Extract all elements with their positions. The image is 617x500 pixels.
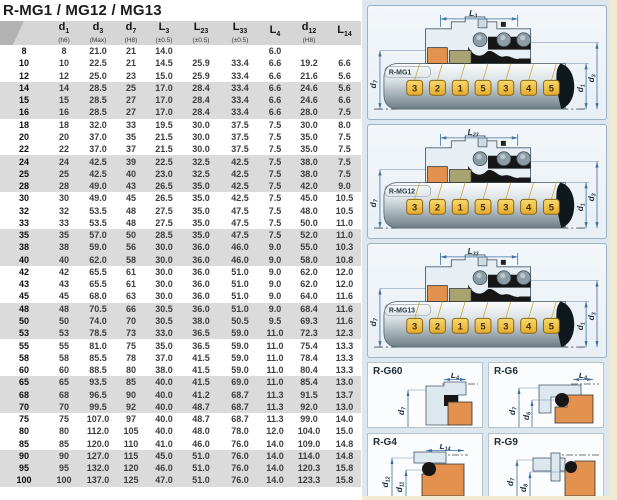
value-cell: 10.3 [328,241,361,253]
table-row: 9595132.012046.051.076.014.0120.315.8 [0,462,361,474]
value-cell: 28.0 [290,106,328,118]
part-tag-number: 5 [480,83,485,94]
part-tag-number: 3 [503,202,508,213]
table-row: 161628.52717.028.433.46.628.07.5 [0,106,361,118]
value-cell [290,45,328,57]
value-cell: 19.2 [290,57,328,69]
part-tag-number: 4 [526,202,532,213]
value-cell: 7.5 [260,143,290,155]
size-cell: 12 [0,70,48,82]
value-cell: 97 [116,413,146,425]
value-cell: 56 [116,241,146,253]
size-cell: 100 [0,474,48,486]
value-cell: 12 [48,70,80,82]
value-cell: 26.5 [146,192,182,204]
value-cell: 109.0 [290,438,328,450]
value-cell: 25.9 [182,57,220,69]
table-row: 585885.57837.041.559.011.078.413.3 [0,352,361,364]
value-cell: 24.6 [290,94,328,106]
value-cell: 41.5 [182,364,220,376]
detail-diagram: L4 d7 d6 [489,373,603,427]
spec-table-body: 8821.02114.06.0101022.52114.525.933.46.6… [0,45,361,487]
size-cell: 70 [0,401,48,413]
value-cell: 120 [116,462,146,474]
value-cell: 9.5 [260,315,290,327]
length-dimension: L4 [444,373,466,382]
value-cell: 39 [116,155,146,167]
value-cell: 28.5 [80,94,116,106]
table-row: 222237.03721.530.037.57.535.07.5 [0,143,361,155]
value-cell: 30.5 [146,303,182,315]
value-cell: 48.0 [182,425,220,437]
value-cell: 10.8 [328,254,361,266]
value-cell: 37.0 [146,352,182,364]
value-cell: 114.0 [290,450,328,462]
value-cell: 62.0 [290,278,328,290]
value-cell: 70 [48,401,80,413]
value-cell: 35.0 [182,204,220,216]
value-cell: 58 [116,254,146,266]
value-cell: 12.0 [328,266,361,278]
table-row: 707099.59240.048.768.711.392.013.0 [0,401,361,413]
spec-table-section: R-MG1 / MG12 / MG13 d1(h6)d3(Max)d7(H8)L… [0,0,362,487]
value-cell: 65.5 [80,266,116,278]
value-cell: 68.7 [220,401,260,413]
value-cell: 45 [48,290,80,302]
value-cell: 24.6 [290,82,328,94]
value-cell: 33.4 [220,82,260,94]
detail-diagram-box: R-G6 L4 d7 d6 [488,362,604,428]
value-cell: 21.5 [146,143,182,155]
value-cell: 51.0 [220,278,260,290]
value-cell: 14.5 [146,57,182,69]
size-cell: 32 [0,204,48,216]
value-cell: 11.0 [260,364,290,376]
dia-dim-1-label: d7 [507,406,519,415]
table-row: 181832.03319.530.037.57.530.08.0 [0,119,361,131]
value-cell: 53.5 [80,204,116,216]
value-cell: 27 [116,94,146,106]
value-cell: 7.5 [260,192,290,204]
value-cell: 46.0 [220,254,260,266]
set-screw [478,19,487,28]
value-cell: 45 [116,192,146,204]
value-cell: 27 [116,106,146,118]
size-cell: 80 [0,425,48,437]
main-diagram-list: L3 d7 d1 d3 [367,5,606,358]
value-cell: 99.0 [290,413,328,425]
value-cell: 7.5 [260,131,290,143]
size-cell: 16 [0,106,48,118]
table-row: 484870.56630.536.051.09.068.411.6 [0,303,361,315]
value-cell: 45.0 [146,450,182,462]
value-cell: 11.3 [260,401,290,413]
value-cell: 25.9 [182,70,220,82]
value-cell: 11.6 [328,290,361,302]
value-cell: 51.0 [220,290,260,302]
length-dim-label: L3 [469,8,477,20]
table-row: 323253.54827.535.047.57.548.010.5 [0,204,361,216]
header-cell: d3(Max) [80,21,116,45]
value-cell: 68.7 [220,388,260,400]
value-cell: 51.0 [182,462,220,474]
value-cell: 42.5 [220,155,260,167]
value-cell: 42.5 [80,168,116,180]
value-cell: 30.0 [146,254,182,266]
detail-diagram-grid: R-G60 L4 d7 R-G6 [367,362,606,499]
seal-diagram: L3 d7 d1 d3 [368,7,604,117]
value-cell: 36.5 [182,339,220,351]
header-corner-cell [0,21,48,45]
value-cell: 48 [48,303,80,315]
value-cell: 51.0 [220,266,260,278]
value-cell: 72.3 [290,327,328,339]
table-row: 505074.07030.538.050.59.569.311.6 [0,315,361,327]
value-cell: 35 [116,131,146,143]
value-cell: 59.0 [80,241,116,253]
value-cell: 104.0 [290,425,328,437]
value-cell: 7.5 [328,143,361,155]
value-cell: 40 [116,168,146,180]
dia-dimension-1: d7 [396,390,426,427]
value-cell: 40.0 [146,413,182,425]
value-cell: 10.5 [328,204,361,216]
value-cell: 48.7 [182,401,220,413]
length-dim-label: L4 [579,373,587,382]
value-cell: 45.0 [290,192,328,204]
value-cell: 37.0 [80,143,116,155]
part-tag-number: 5 [480,202,485,213]
value-cell: 13.7 [328,388,361,400]
table-row: 282849.04326.535.042.57.542.09.0 [0,180,361,192]
value-cell: 6.6 [328,57,361,69]
part-tag-number: 5 [549,83,554,94]
value-cell: 46.0 [182,438,220,450]
value-cell: 25.0 [80,70,116,82]
shaft-dim-2-label: d3 [586,74,598,82]
value-cell: 49.0 [80,180,116,192]
value-cell: 50.5 [220,315,260,327]
value-cell [182,45,220,57]
value-cell: 59.0 [220,327,260,339]
value-cell [328,45,361,57]
springs [473,152,530,166]
value-cell: 51.0 [220,303,260,315]
value-cell: 80 [48,425,80,437]
value-cell: 78.5 [80,327,116,339]
value-cell: 37.5 [220,119,260,131]
value-cell: 13.0 [328,376,361,388]
part-tag-number: 3 [503,83,508,94]
value-cell: 59.0 [220,364,260,376]
size-cell: 68 [0,388,48,400]
value-cell: 8 [48,45,80,57]
dia-dim-2-label: d11 [394,482,406,493]
value-cell: 27.5 [146,217,182,229]
value-cell: 7.5 [328,155,361,167]
bore-dim-label: d7 [368,198,380,207]
value-cell: 42 [48,266,80,278]
value-cell: 47.5 [220,204,260,216]
seal-diagram: L33 d7 d1 d3 [368,245,604,355]
primary-face [449,289,471,302]
header-cell: L33(±0.5) [220,21,260,45]
value-cell: 53.5 [80,217,116,229]
value-cell: 37.0 [80,131,116,143]
length-dim-label: L14 [439,444,450,453]
o-ring [422,462,436,476]
value-cell: 15.0 [328,425,361,437]
seal-diagram: L23 d7 d1 d3 [368,126,604,236]
value-cell: 43 [116,180,146,192]
value-cell: 19.5 [146,119,182,131]
size-cell: 10 [0,57,48,69]
value-cell: 41.2 [182,388,220,400]
value-cell: 85 [48,438,80,450]
value-cell: 12.3 [328,327,361,339]
value-cell: 42.5 [220,192,260,204]
set-screw [478,138,487,147]
value-cell: 137.0 [80,474,116,486]
seat-face [428,167,448,183]
size-cell: 18 [0,119,48,131]
drive-pin [501,260,506,265]
table-row: 454568.06330.036.051.09.064.011.6 [0,290,361,302]
value-cell: 40.0 [146,388,182,400]
value-cell: 37.5 [220,131,260,143]
part-tag-number: 5 [480,321,485,332]
value-cell: 65 [48,376,80,388]
value-cell: 78 [116,352,146,364]
value-cell: 12.0 [260,425,290,437]
table-row: 8080112.010540.048.078.012.0104.015.0 [0,425,361,437]
value-cell: 69.0 [220,376,260,388]
value-cell: 36.0 [182,278,220,290]
value-cell: 43 [48,278,80,290]
value-cell: 38.0 [146,364,182,376]
value-cell: 88.5 [80,364,116,376]
value-cell: 33.4 [220,70,260,82]
value-cell: 27.5 [146,204,182,216]
value-cell: 40.0 [146,401,182,413]
size-cell: 50 [0,315,48,327]
value-cell: 11.0 [260,339,290,351]
value-cell: 33 [116,119,146,131]
size-cell: 8 [0,45,48,57]
part-tag-number: 4 [526,83,532,94]
spec-table: d1(h6)d3(Max)d7(H8)L3(±0.5)L23(±0.5)L33(… [0,21,361,487]
value-cell: 32 [48,204,80,216]
value-cell: 80.4 [290,364,328,376]
value-cell: 53 [48,327,80,339]
value-cell: 38.0 [290,155,328,167]
value-cell: 14.0 [260,474,290,486]
value-cell: 11.6 [328,315,361,327]
o-ring [565,461,577,473]
value-cell: 21 [116,45,146,57]
value-cell: 36.0 [182,241,220,253]
value-cell: 32.5 [182,168,220,180]
size-cell: 28 [0,180,48,192]
value-cell: 40.0 [146,425,182,437]
value-cell: 68.0 [80,290,116,302]
length-dim-label: L23 [468,127,479,139]
table-row: 434365.56130.036.051.09.062.012.0 [0,278,361,290]
spec-table-head: d1(h6)d3(Max)d7(H8)L3(±0.5)L23(±0.5)L33(… [0,21,361,45]
part-tag-number: 3 [412,83,417,94]
diagram-name: R-MG13 [389,307,415,314]
seal-diagram-box: L33 d7 d1 d3 [367,243,607,358]
size-cell: 30 [0,192,48,204]
value-cell: 5.6 [328,70,361,82]
seat [414,452,446,463]
size-cell: 53 [0,327,48,339]
value-cell: 132.0 [80,462,116,474]
value-cell: 99.5 [80,401,116,413]
size-cell: 43 [0,278,48,290]
value-cell: 35.0 [182,180,220,192]
value-cell: 7.5 [260,204,290,216]
header-cell: d1(h6) [48,21,80,45]
primary-face [449,51,471,64]
value-cell: 96.5 [80,388,116,400]
value-cell: 21 [116,57,146,69]
value-cell: 36.0 [182,303,220,315]
value-cell: 62.0 [290,266,328,278]
value-cell: 7.5 [260,229,290,241]
value-cell: 14.0 [146,45,182,57]
value-cell: 28.4 [182,82,220,94]
value-cell: 35.0 [182,217,220,229]
seat-face [428,286,448,302]
value-cell: 51.0 [182,474,220,486]
size-cell: 95 [0,462,48,474]
value-cell: 61 [116,266,146,278]
shaft-dim-1-label: d1 [575,84,587,92]
value-cell: 12.0 [328,278,361,290]
primary-face [449,170,471,183]
value-cell: 75 [48,413,80,425]
size-cell: 33 [0,217,48,229]
value-cell: 90 [48,450,80,462]
value-cell: 92 [116,401,146,413]
length-dimension: L14 [426,444,464,453]
value-cell: 6.6 [260,57,290,69]
seal-diagram-box: L3 d7 d1 d3 [367,5,607,120]
length-dim-label: L33 [468,246,479,258]
table-row: 555581.07535.036.559.011.075.413.3 [0,339,361,351]
value-cell: 6.6 [260,106,290,118]
springs [473,271,530,285]
value-cell: 105 [116,425,146,437]
value-cell: 76.0 [220,474,260,486]
value-cell: 37 [116,143,146,155]
value-cell: 11.0 [260,327,290,339]
table-row: 8821.02114.06.0 [0,45,361,57]
value-cell: 35.0 [182,229,220,241]
value-cell: 36.0 [182,266,220,278]
value-cell: 47.5 [220,217,260,229]
value-cell: 107.0 [80,413,116,425]
value-cell [220,45,260,57]
value-cell: 123.3 [290,474,328,486]
value-cell: 9.0 [260,266,290,278]
catalog-page: R-MG1 / MG12 / MG13 d1(h6)d3(Max)d7(H8)L… [0,0,617,500]
table-row: 353557.05028.535.047.57.552.011.0 [0,229,361,241]
value-cell: 5.6 [328,82,361,94]
value-cell: 33.4 [220,57,260,69]
value-cell: 41.0 [146,438,182,450]
value-cell: 50.0 [290,217,328,229]
value-cell: 23 [116,70,146,82]
value-cell: 112.0 [80,425,116,437]
header-cell: L14 [328,21,361,45]
size-cell: 58 [0,352,48,364]
dia-dim-1-label: d12 [380,476,392,487]
page-edge-right [610,0,617,500]
value-cell: 120.0 [80,438,116,450]
diagram-panel: L3 d7 d1 d3 [362,0,610,496]
value-cell: 46.0 [220,241,260,253]
table-row: 656593.58540.041.569.011.085.413.0 [0,376,361,388]
size-cell: 38 [0,241,48,253]
part-tag-number: 3 [503,321,508,332]
value-cell: 32.5 [182,155,220,167]
value-cell: 13.3 [328,364,361,376]
clamp [551,453,560,481]
value-cell: 7.5 [260,180,290,192]
value-cell: 9.0 [260,254,290,266]
dia-dimension-2: d11 [394,470,422,498]
value-cell: 25 [48,168,80,180]
value-cell: 21.0 [80,45,116,57]
value-cell: 33 [48,217,80,229]
value-cell: 48 [116,217,146,229]
value-cell: 6.6 [260,94,290,106]
seat-face [428,48,448,64]
value-cell: 40 [48,254,80,266]
value-cell: 38.0 [182,315,220,327]
value-cell: 6.6 [328,94,361,106]
table-row: 333353.54827.535.047.57.550.011.0 [0,217,361,229]
part-tag-number: 1 [458,202,463,213]
springs [473,33,530,47]
header-cell: d12(H8) [290,21,328,45]
value-cell: 28.4 [182,106,220,118]
value-cell: 50 [116,229,146,241]
value-cell: 76.0 [220,438,260,450]
length-dim-label: L4 [451,373,459,382]
part-tag-number: 4 [526,321,532,332]
value-cell: 15.0 [146,70,182,82]
detail-diagram: L14 d12 d11 [368,444,482,498]
value-cell: 13.3 [328,352,361,364]
value-cell: 11.0 [260,376,290,388]
value-cell: 90 [116,388,146,400]
value-cell: 85.5 [80,352,116,364]
value-cell: 18 [48,119,80,131]
value-cell: 7.5 [260,155,290,167]
value-cell: 75 [116,339,146,351]
table-row: 252542.54023.032.542.57.538.07.5 [0,168,361,180]
header-row: d1(h6)d3(Max)d7(H8)L3(±0.5)L23(±0.5)L33(… [0,21,361,45]
value-cell: 14.0 [328,413,361,425]
value-cell: 30.0 [290,119,328,131]
value-cell: 21.6 [290,70,328,82]
value-cell: 32.0 [80,119,116,131]
value-cell: 7.5 [328,106,361,118]
value-cell: 11.6 [328,303,361,315]
